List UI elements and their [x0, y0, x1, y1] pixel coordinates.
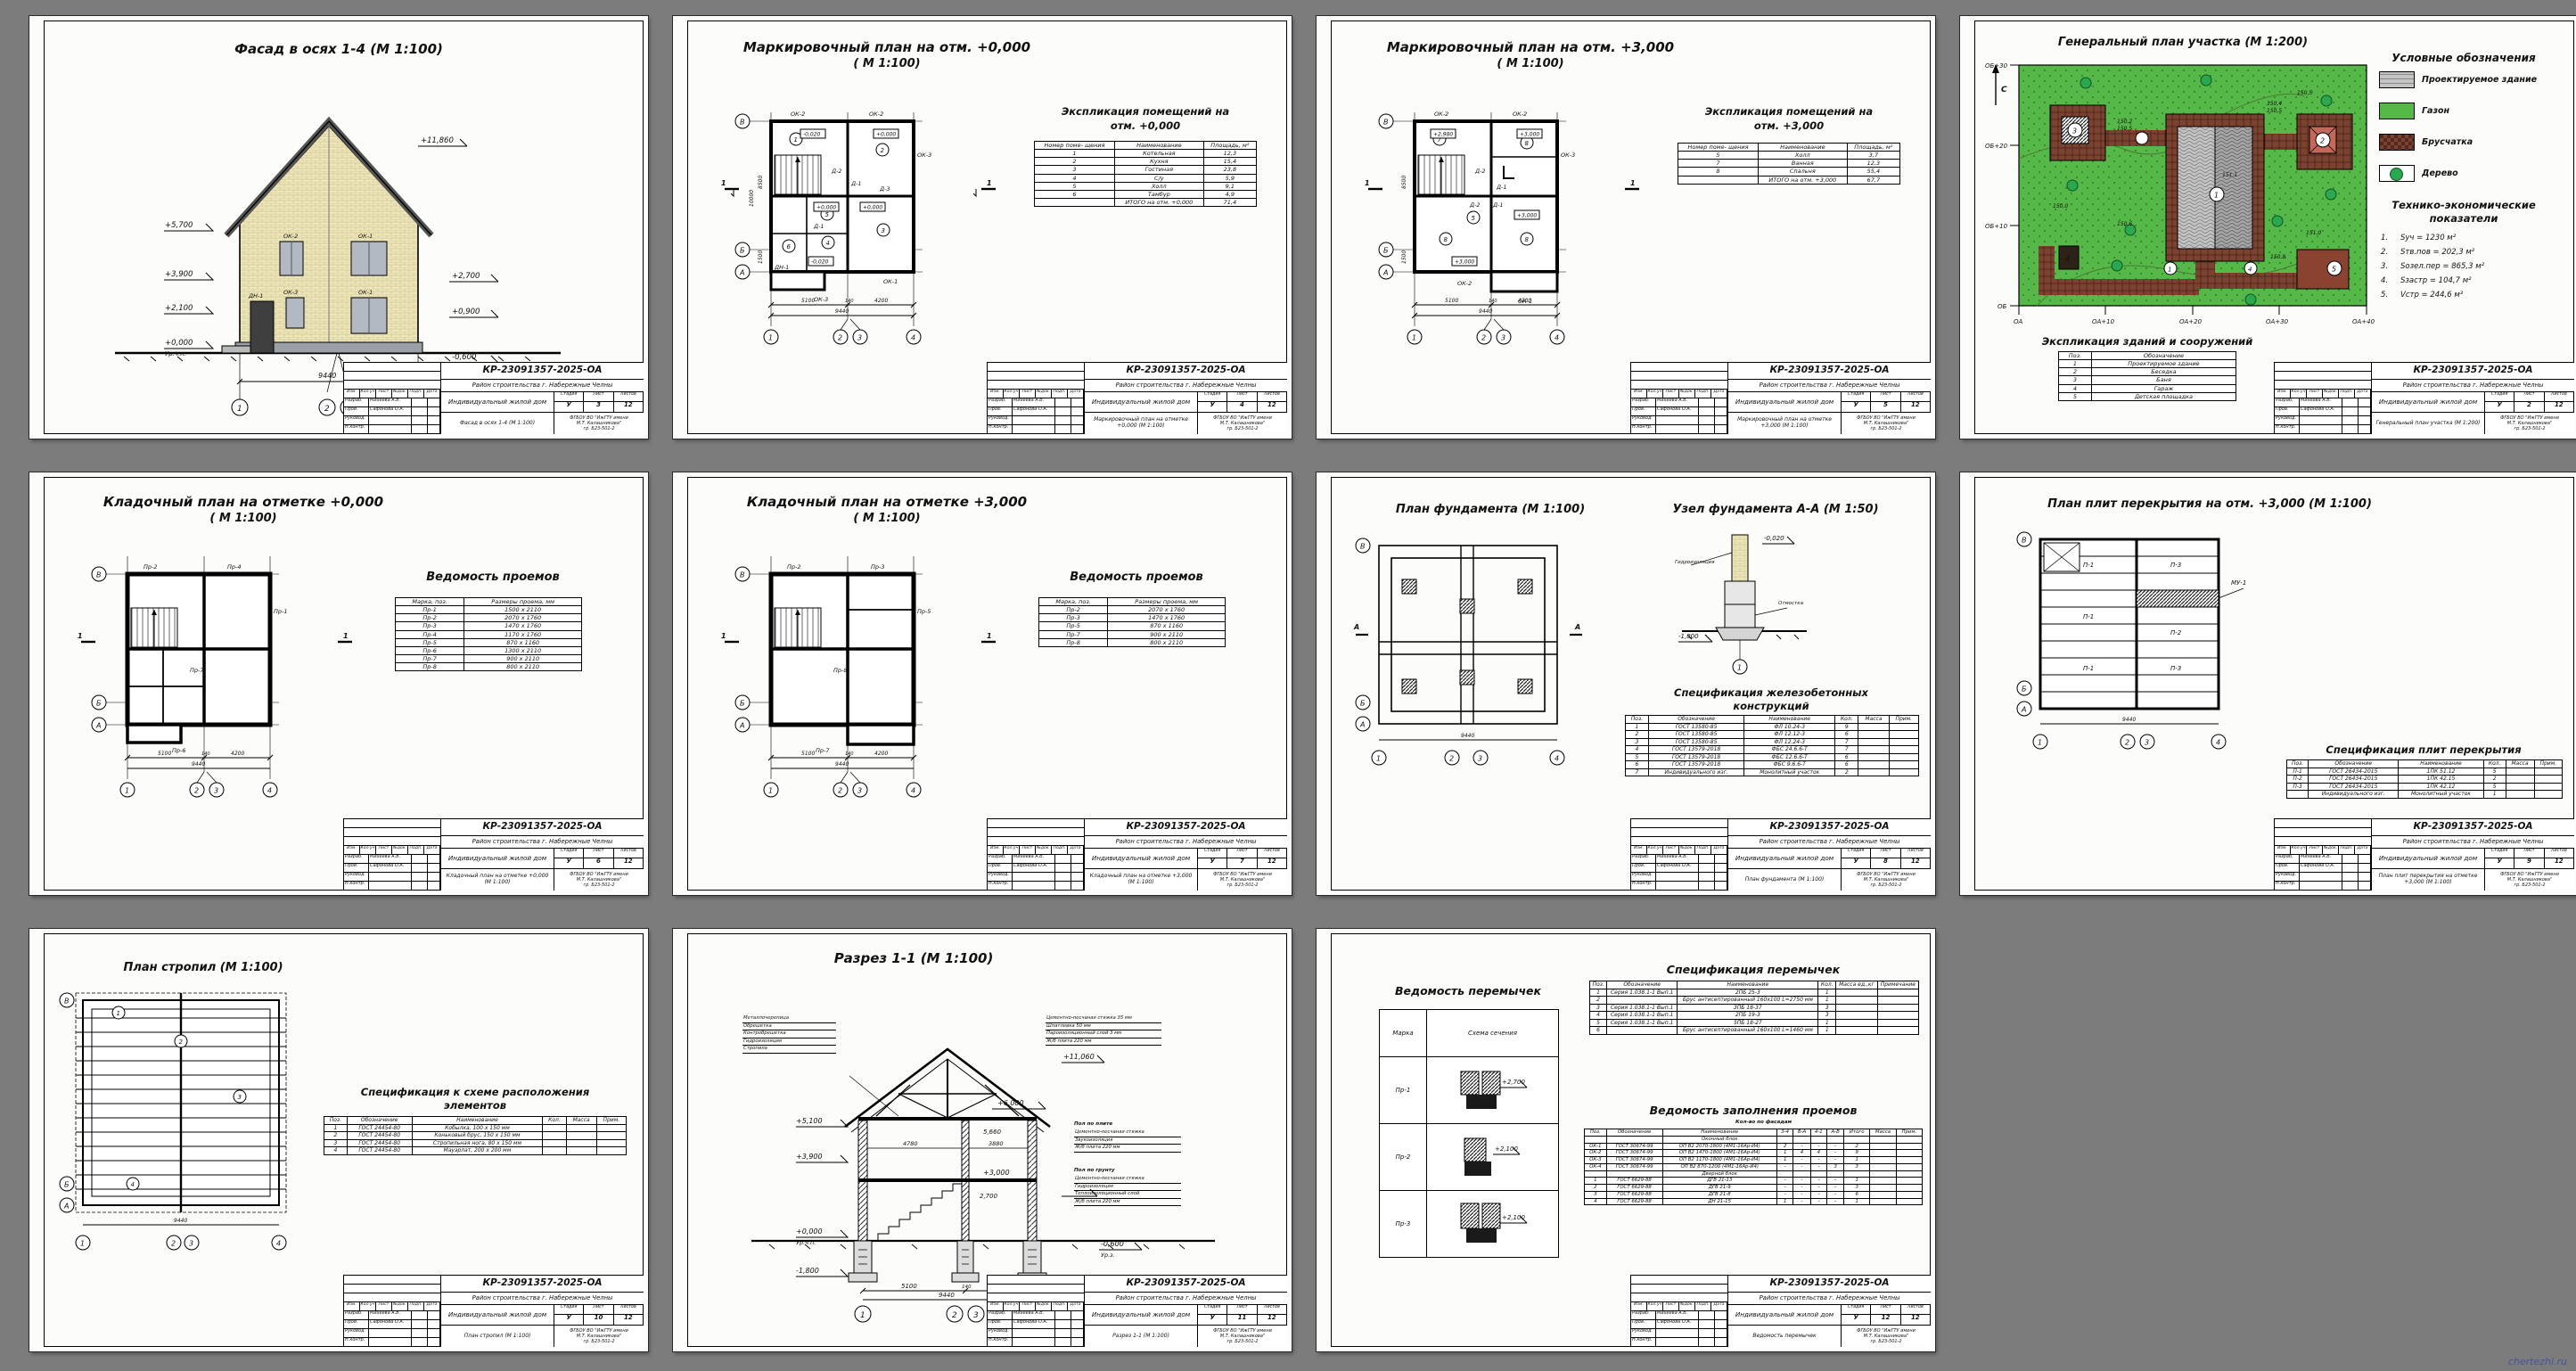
explication-table: Номер поме- щенияНаименованиеПлощадь, м²…	[1034, 141, 1257, 207]
tep-4: 4.Sзастр = 104,7 м²	[2381, 276, 2472, 285]
page-title: Фасад в осях 1-4 (М 1:100)	[29, 41, 648, 57]
svg-text:1: 1	[343, 632, 349, 640]
svg-text:Б: Б	[64, 1181, 70, 1189]
svg-text:3: 3	[2145, 739, 2149, 747]
title-block: Изм.Кол.учЛист№док.Подп.ДатаРазраб.Михее…	[987, 818, 1287, 891]
svg-text:ОК-3: ОК-3	[917, 152, 931, 159]
sheet-marking-plan-3: Маркировочный план на отм. +3,000 ( М 1:…	[1317, 16, 1935, 439]
plan-title: План фундамента (М 1:100)	[1343, 503, 1637, 516]
svg-text:5100: 5100	[901, 1283, 917, 1290]
svg-text:2: 2	[2320, 137, 2325, 145]
svg-text:Д-1: Д-1	[850, 180, 862, 187]
svg-text:ОА+30: ОА+30	[2266, 318, 2289, 325]
lintel-spec-title: Спецификация перемычек	[1584, 963, 1923, 976]
svg-text:1: 1	[794, 136, 798, 144]
svg-text:150,0: 150,0	[2053, 203, 2068, 209]
svg-text:Пр-1: Пр-1	[274, 608, 288, 615]
spec-title-2: элементов	[315, 1099, 636, 1112]
svg-text:140: 140	[201, 751, 210, 757]
svg-text:Пр-5: Пр-5	[917, 608, 931, 615]
svg-text:140: 140	[962, 1285, 972, 1290]
rc-spec-table: Поз.ОбозначениеНаименованиеКол.МассаПрим…	[1625, 715, 1919, 776]
page-title-2: ( М 1:100)	[1343, 57, 1718, 70]
svg-text:3: 3	[1478, 755, 1482, 763]
svg-text:+0,900: +0,900	[452, 308, 480, 316]
svg-text:Д-2: Д-2	[1469, 201, 1481, 209]
svg-text:П-3: П-3	[2170, 665, 2181, 672]
svg-text:Пр-7: Пр-7	[816, 747, 830, 754]
svg-text:9440: 9440	[192, 761, 205, 768]
svg-text:+11,860: +11,860	[421, 136, 454, 145]
svg-text:Д-2: Д-2	[1474, 168, 1486, 175]
site-expl-title: Экспликация зданий и сооружений	[2014, 335, 2281, 348]
expl-title: Экспликация помещений на	[1655, 105, 1923, 118]
ved-title: Ведомость проемов	[368, 571, 618, 584]
rafter-plan: 1 2 3 4 В Б А 9440 1 2 3 4	[56, 982, 341, 1268]
svg-text:А: А	[1382, 269, 1388, 277]
svg-text:П-1: П-1	[2083, 562, 2094, 569]
page-title: Разрез 1-1 (М 1:100)	[726, 950, 1101, 966]
expl-title-2: отм. +3,000	[1655, 119, 1923, 132]
svg-text:1500: 1500	[758, 250, 764, 264]
svg-text:2: 2	[952, 1311, 957, 1320]
svg-text:4: 4	[2065, 255, 2070, 263]
svg-text:1: 1	[80, 1240, 85, 1248]
svg-text:ОА+20: ОА+20	[2179, 318, 2203, 325]
svg-text:4: 4	[911, 334, 915, 342]
svg-text:С: С	[2001, 86, 2007, 94]
svg-text:3: 3	[882, 227, 885, 234]
svg-text:ДН-1: ДН-1	[248, 292, 263, 300]
svg-text:5100: 5100	[158, 751, 171, 757]
svg-text:+3,000: +3,000	[983, 1169, 1010, 1177]
lintel-scheme-3: +2,100	[1427, 1191, 1558, 1257]
svg-text:Пр-3: Пр-3	[871, 563, 885, 571]
tep-5: 5.Vстр = 244,6 м³	[2381, 291, 2463, 300]
svg-text:-0,020: -0,020	[811, 259, 829, 266]
svg-text:140: 140	[1489, 299, 1497, 304]
svg-text:+3,900: +3,900	[796, 1153, 823, 1161]
tep-1: 1.Sуч = 1230 м²	[2381, 234, 2456, 242]
svg-text:ОК-2: ОК-2	[1434, 111, 1448, 118]
node-title: Узел фундамента А-А (М 1:50)	[1628, 503, 1923, 516]
svg-text:3: 3	[973, 1311, 979, 1320]
svg-text:+3,000: +3,000	[1520, 132, 1539, 138]
tep-2: 2.Sтв.пов = 202,3 м²	[2381, 248, 2474, 257]
svg-text:Б: Б	[1383, 247, 1389, 255]
title-block: Изм.Кол.учЛист№док.Подп.ДатаРазраб.Михее…	[343, 1275, 644, 1347]
title-block: Изм.Кол.учЛист№док.Подп.ДатаРазраб.Михее…	[2274, 362, 2574, 434]
svg-text:9440: 9440	[1461, 733, 1474, 739]
tree-swatch	[2379, 165, 2415, 182]
tep-title-2: показатели	[2352, 212, 2575, 225]
svg-text:4200: 4200	[874, 298, 888, 304]
svg-text:+3,000: +3,000	[1517, 213, 1537, 219]
svg-text:А: А	[63, 1203, 69, 1211]
svg-text:1: 1	[987, 632, 992, 640]
sheet-marking-plan-0: Маркировочный план на отм. +0,000 ( М 1:…	[673, 16, 1292, 439]
masonry-plan: Пр-2 Пр-3 Пр-5 Пр-7 Пр-8 1 1 В Б А 5100 …	[709, 538, 1012, 841]
svg-text:Б: Б	[96, 700, 102, 708]
svg-text:1500: 1500	[1401, 250, 1407, 264]
svg-text:Б: Б	[2022, 685, 2027, 694]
lintel-scheme-2: +2,100	[1427, 1124, 1558, 1190]
site-expl-table: Поз.Обозначение1Проектируемое здание2Бес…	[2058, 351, 2236, 401]
svg-text:П-2: П-2	[2170, 629, 2182, 636]
svg-text:В: В	[740, 119, 745, 127]
svg-text:Пр-2: Пр-2	[144, 563, 158, 571]
svg-text:3: 3	[857, 334, 862, 342]
slab-spec-table: Поз.ОбозначениеНаименованиеКол.МассаПрим…	[2286, 759, 2563, 799]
foundation-plan: А А В Б А 9440 1 2 3 4	[1352, 528, 1620, 777]
title-block: Изм.Кол.учЛист№док.Подп.ДатаРазраб.Михее…	[987, 1275, 1287, 1347]
svg-text:-1,800: -1,800	[1678, 633, 1699, 640]
site-plan: 1 2 3 4 5 1 4 ОБ+30 150,2 150,5 150,4 15…	[1983, 52, 2375, 328]
svg-text:ОК-3: ОК-3	[814, 296, 828, 303]
svg-text:+0,000: +0,000	[863, 205, 882, 211]
title-block: Изм.Кол.учЛист№док.Подп.ДатаРазраб.Михее…	[1630, 818, 1931, 891]
svg-text:1: 1	[2214, 192, 2219, 200]
svg-text:6: 6	[787, 243, 792, 250]
svg-text:А: А	[95, 722, 101, 730]
svg-text:8: 8	[1444, 236, 1448, 243]
svg-text:4200: 4200	[874, 751, 888, 757]
svg-text:2: 2	[194, 787, 199, 795]
lintel-schedule: Марка Схема сечения Пр-1 +2,700 Пр-2 +2,…	[1379, 1009, 1559, 1258]
sheet-genplan: Генеральный план участка (М 1:200) 1 2 3…	[1960, 16, 2576, 439]
svg-text:1: 1	[1376, 755, 1381, 763]
svg-text:П-3: П-3	[2170, 562, 2181, 569]
sheet-lintels: Ведомость перемычек Марка Схема сечения …	[1317, 929, 1935, 1351]
svg-text:150,6: 150,6	[2117, 221, 2132, 227]
svg-text:Б: Б	[740, 700, 745, 708]
svg-text:В: В	[96, 571, 102, 579]
svg-text:4200: 4200	[231, 751, 244, 757]
svg-text:В: В	[740, 571, 745, 579]
svg-text:2: 2	[1481, 334, 1486, 342]
building-swatch	[2379, 71, 2415, 88]
fill-subheader: Кол-во по фасадам	[1735, 1120, 1792, 1125]
svg-text:151,1: 151,1	[2222, 172, 2237, 178]
expl-title-2: отм. +0,000	[1012, 119, 1279, 132]
svg-text:ОА+40: ОА+40	[2352, 318, 2375, 325]
svg-text:МУ-1: МУ-1	[2231, 579, 2246, 587]
roof-layers-callout: МеталлочерепицаОбрешеткаКонтробрешеткаГи…	[742, 1016, 836, 1055]
page-title: Кладочный план на отметке +0,000	[56, 494, 431, 510]
svg-text:+3,900: +3,900	[165, 270, 193, 279]
page-title: План плит перекрытия на отм. +3,000 (М 1…	[1987, 497, 2432, 511]
svg-text:+0,000: +0,000	[876, 132, 896, 138]
svg-text:5: 5	[825, 211, 830, 218]
svg-text:3880: 3880	[989, 1140, 1004, 1147]
svg-text:Д-1: Д-1	[813, 223, 824, 230]
lintel-spec-table: Поз.ОбозначениеНаименованиеКол.Масса ед.…	[1589, 981, 1919, 1035]
masonry-plan: Пр-2 Пр-4 Пр-1 Пр-6 Пр-7 1 1 В Б А 5100 …	[65, 538, 368, 841]
svg-text:ОБ: ОБ	[1998, 303, 2007, 310]
svg-text:2: 2	[171, 1240, 176, 1248]
page-title: Маркировочный план на отм. +3,000	[1343, 39, 1718, 55]
svg-text:Пр-2: Пр-2	[787, 563, 801, 571]
svg-text:3: 3	[1501, 334, 1505, 342]
svg-text:140: 140	[845, 751, 854, 757]
svg-text:+2,100: +2,100	[1495, 1145, 1518, 1153]
svg-text:+5,100: +5,100	[796, 1117, 823, 1125]
svg-text:ОА+10: ОА+10	[2092, 318, 2115, 325]
page-title: Маркировочный план на отм. +0,000	[700, 39, 1074, 55]
svg-text:2,700: 2,700	[980, 1193, 998, 1200]
svg-text:151,0: 151,0	[2306, 230, 2321, 236]
explication-table: Номер поме- щенияНаименованиеПлощадь, м²…	[1678, 143, 1900, 185]
svg-text:Отмостка: Отмостка	[1778, 601, 1804, 606]
svg-text:Пр-4: Пр-4	[227, 563, 242, 571]
svg-text:Ур.з.: Ур.з.	[1101, 1252, 1115, 1259]
svg-text:-0,600: -0,600	[452, 353, 476, 362]
svg-text:9440: 9440	[835, 308, 849, 315]
foundation-node: -0,020 -1,800 Гидроизоляция Отмостка 1	[1673, 526, 1816, 686]
svg-text:Б: Б	[1360, 700, 1366, 708]
svg-text:4780: 4780	[903, 1140, 918, 1147]
svg-text:+0,000: +0,000	[165, 339, 193, 348]
floor2-layers-callout: Цементно-песчаная стяжкаЗвукоизоляцияЖ/б…	[1074, 1130, 1181, 1153]
svg-text:150,2: 150,2	[2117, 119, 2132, 125]
watermark: chertezhi.ru	[2508, 1356, 2567, 1367]
sheet-facade: Фасад в осях 1-4 (М 1:100) ОК-2 ОК-1 ОК-…	[29, 16, 648, 439]
svg-text:2: 2	[2125, 739, 2129, 747]
svg-text:Б: Б	[740, 247, 745, 255]
page-title-2: ( М 1:100)	[56, 512, 431, 525]
svg-text:ОК-3: ОК-3	[283, 289, 298, 296]
svg-text:А: А	[739, 269, 744, 277]
svg-text:1: 1	[2038, 739, 2042, 747]
svg-text:В: В	[64, 997, 70, 1006]
svg-text:150,5: 150,5	[2117, 126, 2132, 132]
svg-text:5100: 5100	[801, 751, 815, 757]
svg-text:5: 5	[1472, 215, 1476, 222]
title-block: Изм.Кол.учЛист№док.Подп.ДатаРазраб.Михее…	[343, 818, 644, 891]
svg-text:ОБ+10: ОБ+10	[1985, 223, 2008, 230]
svg-text:5: 5	[2332, 266, 2336, 274]
paver-swatch	[2379, 134, 2415, 151]
svg-text:4: 4	[911, 787, 915, 795]
lintel-scheme-1: +2,700	[1427, 1057, 1558, 1123]
svg-text:1: 1	[860, 1311, 866, 1320]
page-title: План стропил (М 1:100)	[56, 961, 350, 974]
svg-text:В: В	[2022, 537, 2027, 545]
svg-text:-1,800: -1,800	[796, 1267, 819, 1275]
svg-text:1: 1	[1412, 334, 1416, 342]
svg-text:А: А	[2021, 706, 2026, 714]
svg-text:-0,020: -0,020	[803, 132, 821, 138]
floor1-layers-callout: Цементно-песчаная стяжкаГидроизоляцияТеп…	[1074, 1177, 1181, 1207]
svg-text:3: 3	[189, 1240, 193, 1248]
svg-text:В: В	[1383, 119, 1389, 127]
svg-text:А: А	[739, 722, 744, 730]
rafter-spec-table: Поз.ОбозначениеНаименованиеКол.МассаПрим…	[324, 1116, 627, 1155]
floor1-title: Пол по грунту	[1074, 1168, 1115, 1173]
svg-text:Д-1: Д-1	[1496, 184, 1507, 191]
svg-text:Пр-7: Пр-7	[190, 667, 204, 674]
sheet-foundation: План фундамента (М 1:100) Узел фундамент…	[1317, 472, 1935, 895]
svg-text:9440: 9440	[174, 1218, 187, 1224]
openings-table: Марка, поз.Размеры проема, ммПр-11500 x …	[395, 597, 582, 671]
svg-text:1: 1	[2168, 267, 2171, 274]
svg-text:4: 4	[1555, 334, 1559, 342]
legend-title: Условные обозначения	[2352, 52, 2575, 64]
svg-text:А: А	[1574, 623, 1580, 631]
svg-text:Пр-6: Пр-6	[172, 747, 186, 754]
svg-text:ОК-2: ОК-2	[283, 233, 298, 240]
svg-text:1: 1	[721, 179, 726, 187]
svg-text:+2,700: +2,700	[1502, 1079, 1525, 1086]
floor2-title: Пол по плите	[1074, 1121, 1112, 1127]
sheet-masonry-plan-3: Кладочный план на отметке +3,000 ( М 1:1…	[673, 472, 1292, 895]
spec-title: Спецификация плит перекрытия	[2281, 743, 2566, 756]
svg-text:ОК-1: ОК-1	[358, 289, 373, 296]
attic-layers-callout: Цементно-песчаная стяжка 35 ммШпатлевка …	[1046, 1016, 1161, 1047]
legend-item-lawn: Газон	[2379, 103, 2449, 119]
svg-text:5100: 5100	[1445, 298, 1458, 304]
svg-text:150,4: 150,4	[2267, 101, 2282, 107]
sheet-rafter-plan: План стропил (М 1:100) 1 2 3 4 В Б А 944…	[29, 929, 648, 1351]
svg-text:+2,700: +2,700	[452, 272, 480, 281]
svg-text:+11,060: +11,060	[1063, 1053, 1095, 1061]
svg-text:+3,000: +3,000	[1455, 259, 1474, 266]
svg-text:А: А	[1359, 721, 1365, 729]
svg-text:ОК-2: ОК-2	[791, 111, 805, 118]
fill-table: Поз.ОбозначениеНаименование3-4В-А4-1А-ВИ…	[1584, 1129, 1923, 1205]
svg-text:150,5: 150,5	[2267, 108, 2282, 114]
sheet-section: Разрез 1-1 (М 1:100) +5,100 +3,900 +0,00…	[673, 929, 1292, 1351]
svg-text:1: 1	[1737, 664, 1742, 672]
svg-text:3: 3	[857, 787, 862, 795]
svg-text:10000: 10000	[749, 190, 755, 207]
svg-text:Д-3: Д-3	[879, 185, 890, 193]
title-block: Изм.Кол.учЛист№док.Подп.ДатаРазраб.Михее…	[1630, 362, 1931, 434]
svg-text:Гидроизоляция: Гидроизоляция	[1675, 560, 1715, 565]
svg-text:Д-2: Д-2	[831, 168, 842, 175]
svg-text:8500: 8500	[1401, 176, 1407, 189]
svg-text:+5,700: +5,700	[165, 221, 193, 230]
spec-title: Спецификация железобетонных	[1620, 686, 1923, 699]
floor-plan: 1 2 3 4 5 6 -0,020 +0,000 +0,000 +0,000 …	[709, 86, 1012, 389]
svg-text:-0,020: -0,020	[1764, 535, 1784, 542]
svg-text:2: 2	[1449, 755, 1454, 763]
expl-title: Экспликация помещений на	[1012, 105, 1279, 118]
svg-text:9440: 9440	[835, 761, 849, 768]
tep-title: Технико-экономические	[2352, 199, 2575, 211]
svg-text:ОК-3: ОК-3	[1561, 152, 1575, 159]
title-block: Изм.Кол.учЛист№док.Подп.ДатаРазраб.Михее…	[987, 362, 1287, 434]
svg-text:+0,000: +0,000	[816, 205, 836, 211]
svg-text:ДН-1: ДН-1	[774, 264, 789, 271]
svg-text:Д-1: Д-1	[1492, 201, 1504, 209]
svg-text:Пр-8: Пр-8	[833, 667, 848, 674]
tep-3: 3.Sозел.пер = 865,3 м²	[2381, 262, 2484, 271]
svg-text:ОК-1: ОК-1	[358, 233, 373, 240]
svg-text:1: 1	[237, 405, 242, 414]
page-title: Генеральный план участка (М 1:200)	[2014, 36, 2352, 49]
spec-title: Спецификация к схеме расположения	[315, 1086, 636, 1098]
svg-text:4: 4	[2248, 267, 2252, 274]
legend-item-building: Проектируемое здание	[2379, 71, 2537, 88]
svg-text:+2,100: +2,100	[165, 304, 193, 313]
lawn-swatch	[2379, 103, 2415, 119]
title-block: Изм.Кол.учЛист№док.Подп.ДатаРазраб.Михее…	[343, 362, 644, 434]
svg-text:8: 8	[1525, 236, 1530, 243]
svg-text:4: 4	[131, 1181, 135, 1188]
svg-text:1: 1	[768, 334, 773, 342]
svg-text:4: 4	[267, 787, 272, 795]
svg-text:2: 2	[324, 405, 330, 414]
svg-text:+6,000: +6,000	[997, 1099, 1024, 1107]
svg-text:П-1: П-1	[2083, 613, 2094, 620]
floor-plan: 7 8 5 8 8 +2,980 +3,000 +3,000 +3,000 Д-…	[1352, 86, 1655, 389]
title-block: Изм.Кол.учЛист№док.Подп.ДатаРазраб.Михее…	[1630, 1275, 1931, 1347]
page-title-2: ( М 1:100)	[700, 512, 1074, 525]
svg-text:В: В	[1360, 543, 1366, 551]
svg-text:1: 1	[1365, 179, 1370, 187]
svg-text:4: 4	[826, 240, 830, 247]
svg-text:9440: 9440	[2122, 717, 2136, 723]
spec-title-2: конструкций	[1620, 700, 1923, 712]
svg-text:3: 3	[2072, 127, 2077, 135]
svg-text:ОК-2: ОК-2	[1457, 280, 1472, 287]
svg-text:4: 4	[1555, 755, 1559, 763]
svg-text:1: 1	[987, 179, 992, 187]
ved-title: Ведомость проемов	[1012, 571, 1261, 584]
svg-text:1: 1	[125, 787, 129, 795]
svg-text:Ур.ч.п.: Ур.ч.п.	[796, 1239, 816, 1246]
svg-text:3: 3	[214, 787, 218, 795]
page-title: Кладочный план на отметке +3,000	[700, 494, 1074, 510]
fill-title: Ведомость заполнения проемов	[1584, 1104, 1923, 1117]
legend-item-tree: Дерево	[2379, 165, 2458, 182]
svg-text:ОК-1: ОК-1	[883, 278, 898, 285]
title-block: Изм.Кол.учЛист№док.Подп.ДатаРазраб.Михее…	[2274, 818, 2574, 891]
svg-text:2: 2	[838, 787, 842, 795]
svg-text:ОБ+20: ОБ+20	[1985, 143, 2008, 150]
svg-text:3: 3	[238, 1094, 242, 1101]
lintel-ved-title: Ведомость перемычек	[1361, 984, 1575, 997]
svg-text:9440: 9440	[939, 1292, 955, 1299]
svg-text:2: 2	[838, 334, 842, 342]
svg-text:+2,980: +2,980	[1433, 132, 1453, 138]
svg-text:2: 2	[881, 147, 885, 154]
svg-text:П-1: П-1	[2083, 665, 2094, 672]
svg-text:9440: 9440	[318, 372, 336, 380]
page-title-2: ( М 1:100)	[700, 57, 1074, 70]
svg-text:А: А	[1353, 623, 1359, 631]
svg-text:1: 1	[1630, 179, 1636, 187]
svg-text:1: 1	[721, 632, 726, 640]
sheet-slab-plan: План плит перекрытия на отм. +3,000 (М 1…	[1960, 472, 2576, 895]
sheet-masonry-plan-0: Кладочный план на отметке +0,000 ( М 1:1…	[29, 472, 648, 895]
svg-text:4200: 4200	[1518, 298, 1531, 304]
svg-text:1: 1	[78, 632, 83, 640]
svg-text:ОА: ОА	[2014, 318, 2023, 325]
svg-text:5,660: 5,660	[983, 1129, 1002, 1136]
svg-text:+0,000: +0,000	[796, 1227, 823, 1236]
svg-text:9440: 9440	[1479, 308, 1492, 315]
svg-text:5100: 5100	[801, 298, 815, 304]
svg-text:ОК-2: ОК-2	[869, 111, 883, 118]
svg-text:+2,100: +2,100	[1502, 1214, 1525, 1221]
svg-text:2: 2	[179, 1039, 184, 1046]
svg-text:8500: 8500	[758, 176, 764, 189]
svg-text:4: 4	[276, 1240, 281, 1248]
legend-item-pavers: Брусчатка	[2379, 134, 2473, 151]
svg-text:1: 1	[117, 1010, 120, 1017]
